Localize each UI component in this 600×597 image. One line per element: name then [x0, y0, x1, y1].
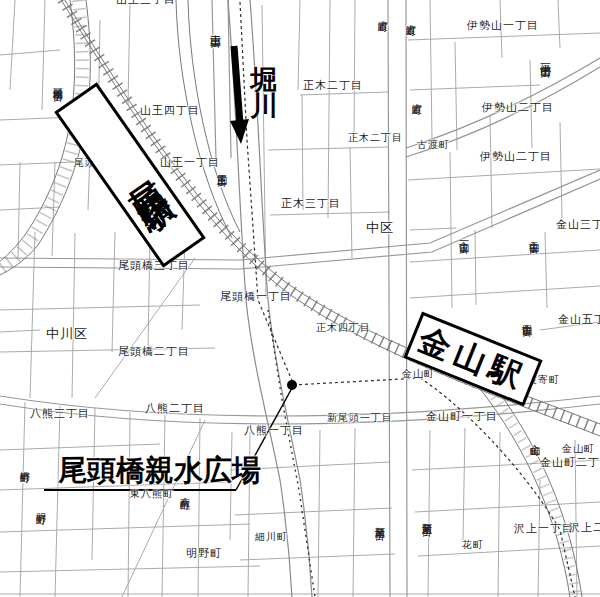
area-label: 正木二丁目 [348, 133, 403, 144]
area-label: 正木三丁目 [281, 198, 341, 210]
area-label: 山王三丁目 [116, 0, 176, 6]
area-label: 細川町 [255, 532, 288, 543]
area-label: 山王一丁目 [160, 157, 220, 169]
area-label: 尾頭橋四丁目 [52, 80, 63, 86]
area-label: 古渡町 [411, 95, 422, 98]
river-name-label: 堀川 [246, 44, 282, 184]
area-label: 金山五丁目 [558, 314, 600, 326]
area-label: 古渡町 [405, 16, 416, 19]
area-label: 新尾頭一丁目 [327, 413, 393, 424]
area-label: 尾頭橋三丁目 [118, 260, 190, 272]
area-label: 八熊二丁目 [145, 403, 205, 415]
area-label: 伊勢山一丁目 [539, 55, 551, 61]
area-label: 山王三丁目 [216, 166, 227, 171]
area-label: 尾頭橋二丁目 [118, 346, 190, 358]
area-label: 花町 [462, 540, 484, 551]
area-label: 沢上二丁目 [569, 522, 600, 534]
area-label: 山王二丁目 [209, 26, 221, 31]
area-label: 山王四丁目 [140, 105, 200, 117]
area-label: 金山町二丁目 [540, 457, 600, 469]
area-label: 八熊一丁目 [244, 425, 304, 437]
map-canvas: 山王三丁目山王二丁目尾頭橋四丁目山王四丁目尾頭橋四丁目山王一丁目山王三丁目古渡町… [0, 0, 600, 597]
area-label: 古渡町 [377, 12, 388, 15]
area-label: 中川区 [46, 327, 88, 341]
area-label: 新尾頭三丁目 [421, 515, 432, 521]
area-label: 伊勢山二丁目 [480, 151, 552, 163]
area-label: 八熊三丁目 [30, 408, 90, 420]
area-label: 金山町 [562, 444, 595, 455]
area-label: 金山一丁目 [458, 233, 469, 238]
area-label: 明野町 [35, 505, 46, 508]
area-label: 金山町 [402, 369, 435, 380]
plaza-location-dot [287, 380, 297, 390]
area-label: 正木二丁目 [303, 80, 363, 92]
area-label: 中区 [366, 221, 394, 235]
area-label: 明野町 [186, 548, 222, 560]
area-label: 伊勢山二丁目 [482, 102, 554, 114]
area-label: 古渡町 [417, 140, 450, 151]
area-label: 金山四丁目 [521, 316, 532, 321]
area-label: 伊勢山一丁目 [467, 20, 539, 32]
area-label: 正木四丁目 [316, 323, 371, 334]
area-label: 金山町 [529, 436, 540, 439]
area-label: 金山町一丁目 [426, 411, 498, 423]
plaza-name-label: 尾頭橋親水広場 [58, 451, 261, 491]
area-label: 尾頭橋一丁目 [220, 291, 292, 303]
area-label: 沢上一丁目 [514, 523, 574, 535]
area-label: 金山三丁目 [556, 219, 600, 231]
area-label: 新尾頭二丁目 [374, 519, 385, 525]
area-label: 金山二丁目 [528, 233, 539, 238]
area-label: 橋野町 [19, 463, 30, 466]
